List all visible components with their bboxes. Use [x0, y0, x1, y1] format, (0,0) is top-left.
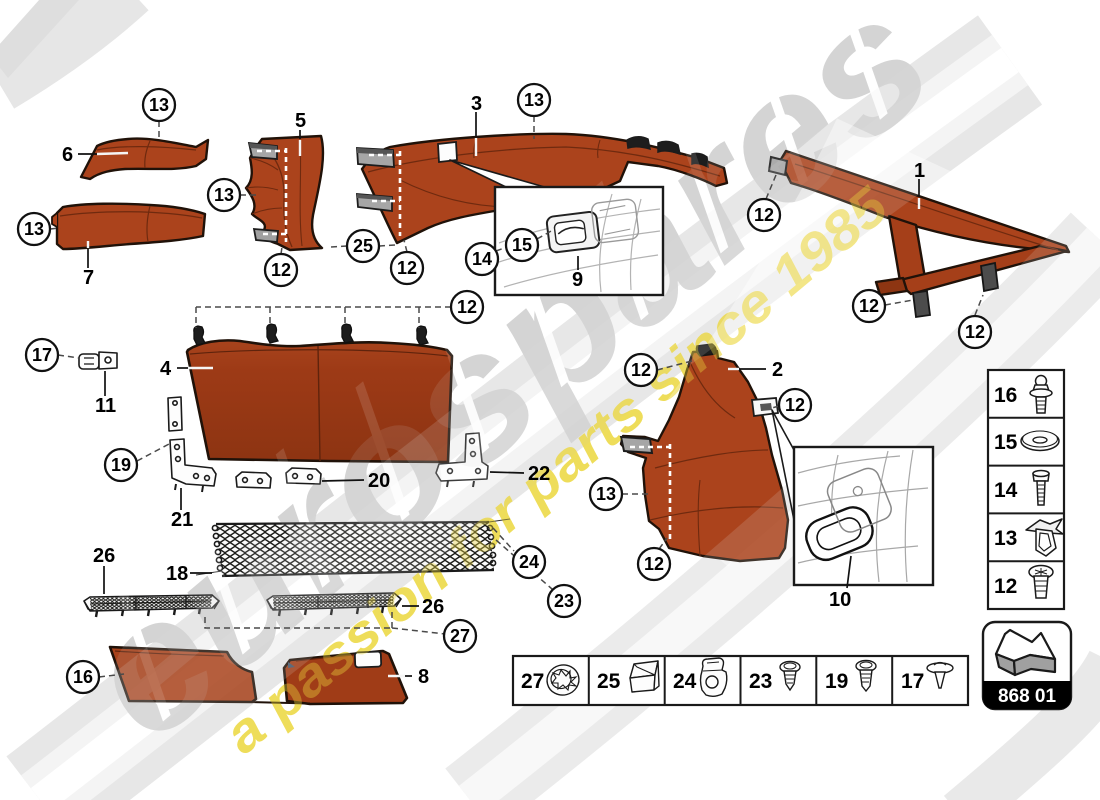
svg-text:13: 13: [524, 90, 544, 110]
svg-text:23: 23: [749, 670, 772, 693]
svg-text:8: 8: [418, 666, 429, 688]
svg-text:15: 15: [994, 431, 1018, 454]
svg-text:12: 12: [631, 360, 651, 380]
svg-text:11: 11: [95, 395, 116, 417]
svg-text:10: 10: [829, 589, 851, 611]
svg-text:6: 6: [62, 144, 73, 166]
svg-text:14: 14: [472, 249, 492, 269]
svg-text:3: 3: [471, 93, 482, 115]
svg-text:12: 12: [457, 297, 477, 317]
svg-text:17: 17: [901, 670, 924, 693]
svg-text:7: 7: [83, 267, 94, 289]
svg-text:5: 5: [295, 110, 306, 132]
svg-text:25: 25: [353, 236, 373, 256]
svg-text:21: 21: [171, 509, 193, 531]
svg-text:12: 12: [994, 575, 1017, 598]
svg-text:17: 17: [32, 345, 52, 365]
svg-text:12: 12: [754, 205, 774, 225]
svg-text:12: 12: [859, 296, 879, 316]
svg-text:13: 13: [596, 484, 616, 504]
svg-text:13: 13: [214, 185, 234, 205]
svg-text:20: 20: [368, 470, 390, 492]
svg-text:24: 24: [673, 670, 697, 693]
svg-text:13: 13: [149, 95, 169, 115]
svg-text:4: 4: [160, 358, 172, 380]
svg-text:24: 24: [519, 552, 539, 572]
svg-text:9: 9: [572, 269, 583, 291]
svg-text:16: 16: [73, 667, 93, 687]
svg-text:12: 12: [397, 258, 417, 278]
svg-text:25: 25: [597, 670, 621, 693]
svg-text:1: 1: [914, 160, 925, 182]
svg-text:27: 27: [450, 626, 470, 646]
svg-text:13: 13: [994, 527, 1017, 550]
svg-text:15: 15: [512, 235, 532, 255]
svg-text:2: 2: [772, 359, 783, 381]
svg-text:14: 14: [994, 479, 1018, 502]
svg-text:18: 18: [166, 563, 188, 585]
svg-text:13: 13: [24, 219, 44, 239]
svg-text:27: 27: [521, 670, 544, 693]
svg-text:12: 12: [965, 322, 985, 342]
svg-text:26: 26: [422, 596, 444, 618]
svg-text:19: 19: [111, 455, 131, 475]
svg-text:16: 16: [994, 384, 1017, 407]
svg-text:23: 23: [554, 591, 574, 611]
svg-text:19: 19: [825, 670, 848, 693]
svg-text:26: 26: [93, 545, 115, 567]
svg-text:22: 22: [528, 463, 550, 485]
svg-text:12: 12: [785, 395, 805, 415]
svg-text:12: 12: [644, 554, 664, 574]
svg-text:12: 12: [271, 260, 291, 280]
svg-text:868 01: 868 01: [998, 686, 1057, 707]
